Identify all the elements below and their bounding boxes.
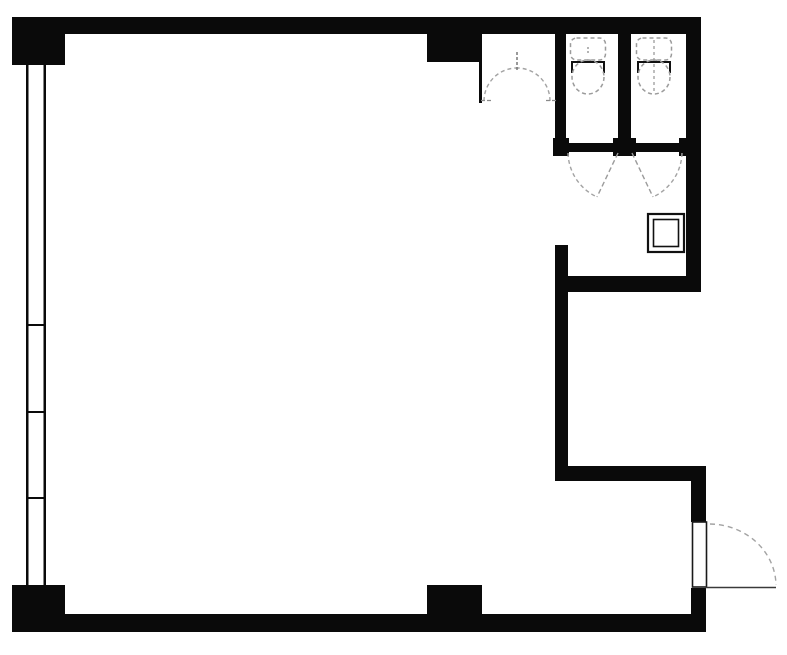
entrance-door-frame bbox=[693, 522, 707, 587]
stall-door-right-swing-arc bbox=[653, 153, 682, 197]
floor-plan bbox=[0, 0, 787, 655]
window-mullion-tick-3 bbox=[28, 497, 44, 499]
vestibule-door-arc-right bbox=[517, 68, 550, 101]
vestibule-partition-wall bbox=[479, 34, 482, 103]
entry-wall-upper bbox=[691, 466, 706, 522]
stall-left-wall bbox=[555, 17, 566, 143]
anteroom-south-wall bbox=[555, 276, 701, 292]
entrance-door-swing-arc bbox=[710, 524, 776, 585]
mid-right-wall bbox=[555, 245, 568, 480]
bottom-wall bbox=[12, 614, 704, 632]
top-wall bbox=[12, 17, 700, 34]
top-left-corner-block bbox=[12, 17, 65, 65]
hinge-post-left bbox=[553, 138, 569, 156]
stall-door-right-leaf bbox=[632, 153, 653, 197]
stall-door-left-swing-arc bbox=[568, 153, 597, 197]
bottom-center-pier bbox=[427, 585, 482, 614]
vestibule-door-arc-left bbox=[484, 68, 517, 101]
stall-door-left-leaf bbox=[597, 153, 618, 197]
stall-divider-wall bbox=[618, 33, 631, 143]
toilet-1-seat-bar bbox=[572, 62, 604, 73]
entry-wall-lower bbox=[691, 588, 706, 632]
window-mullion-tick-2 bbox=[28, 411, 44, 413]
window-mullion-tick-1 bbox=[28, 324, 44, 326]
toilet-1-bowl bbox=[572, 60, 604, 94]
lower-step-wall bbox=[555, 466, 706, 481]
top-center-pier bbox=[427, 34, 480, 62]
floor-plan-drawing bbox=[0, 0, 787, 655]
